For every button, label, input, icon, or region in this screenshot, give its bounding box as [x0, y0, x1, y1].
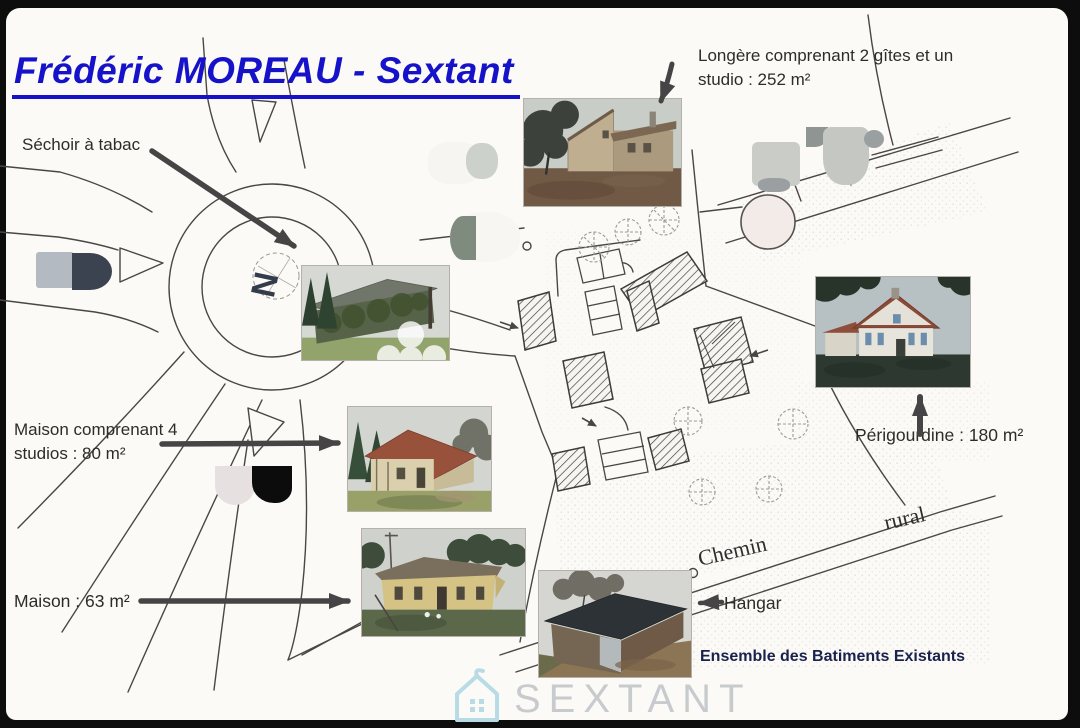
photo-maison-4-studios	[348, 407, 491, 511]
redaction-blob	[758, 178, 790, 192]
label-maison: Maison : 63 m²	[14, 589, 130, 614]
redaction-blob	[823, 127, 869, 185]
sextant-logo: SEXTANT	[448, 666, 752, 726]
redaction-blob	[864, 130, 884, 148]
label-longere-line2: studio : 252 m²	[698, 68, 953, 92]
house-icon	[448, 666, 506, 726]
label-longere-line1: Longère comprenant 2 gîtes et un	[698, 44, 953, 68]
label-maison-studios: Maison comprenant 4 studios : 80 m²	[14, 418, 177, 466]
logo-wordmark: SEXTANT	[514, 677, 752, 722]
label-sechoir: Séchoir à tabac	[22, 133, 140, 157]
label-hangar-text: Hangar	[724, 593, 781, 613]
label-sechoir-text: Séchoir à tabac	[22, 135, 140, 154]
redaction-blob	[252, 466, 292, 503]
label-maison-studios-line1: Maison comprenant 4	[14, 418, 177, 442]
caption-ensemble-batiments: Ensemble des Batiments Existants	[700, 648, 965, 666]
page-title: Frédéric MOREAU - Sextant	[12, 50, 520, 99]
redaction-blob	[466, 143, 498, 179]
label-perigourdine-text: Périgourdine : 180 m²	[855, 425, 1023, 445]
photo-sechoir	[302, 266, 449, 360]
label-hangar: Hangar	[724, 591, 781, 616]
redaction-blob	[36, 252, 74, 288]
photo-perigourdine	[816, 277, 970, 387]
photo-longere	[524, 99, 681, 206]
label-maison-text: Maison : 63 m²	[14, 591, 130, 611]
scanned-site-plan-page: N Chemin rural	[0, 0, 1080, 728]
label-perigourdine: Périgourdine : 180 m²	[855, 423, 1023, 448]
redaction-blob	[215, 466, 255, 505]
photo-maison-63	[362, 529, 525, 636]
redaction-blob	[450, 216, 476, 260]
label-maison-studios-line2: studios : 80 m²	[14, 442, 177, 466]
label-longere: Longère comprenant 2 gîtes et un studio …	[698, 44, 953, 92]
photo-hangar	[539, 571, 691, 677]
